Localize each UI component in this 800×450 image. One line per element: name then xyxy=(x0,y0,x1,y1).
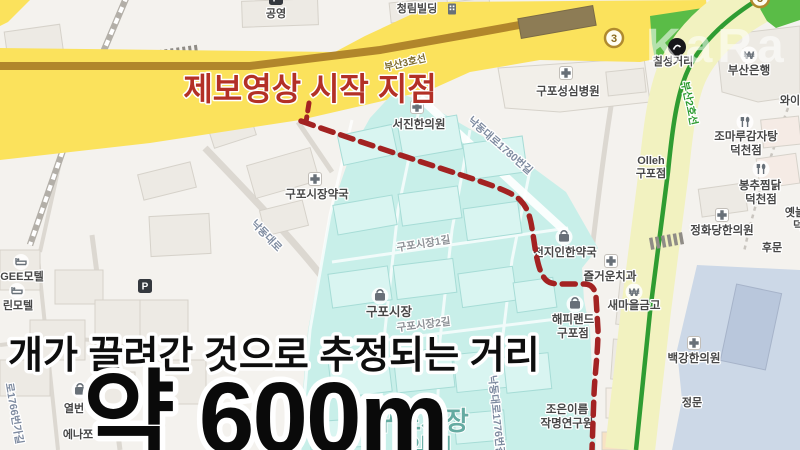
label-pharmacy: 구포시장약국 xyxy=(285,187,349,201)
label-olleh-1: Olleh xyxy=(637,155,665,167)
line3-station-marker-2 xyxy=(751,0,769,7)
restaurant-icon-bongchu xyxy=(753,161,770,178)
store-icon-happyland xyxy=(567,296,584,313)
kara-watermark: KaRa xyxy=(646,20,789,73)
label-jeongmun: 정문 xyxy=(682,395,702,409)
market-icon-gupo xyxy=(372,288,389,305)
label-jeonghwadang: 정화당한의원 xyxy=(690,223,753,237)
label-dental: 즐거운치과 xyxy=(584,269,637,283)
parking-icon xyxy=(138,279,152,293)
label-cheonjiin: 천지인한약국 xyxy=(533,245,597,259)
label-seojin: 서진한의원 xyxy=(393,117,446,131)
bank-icon-saemaul xyxy=(626,284,643,301)
clinic-icon-baekgang xyxy=(688,337,701,350)
line3-station-marker xyxy=(605,29,623,47)
store-icon-cheonjiin xyxy=(556,229,573,246)
hospital-icon-seongsim xyxy=(560,67,573,80)
label-wai: 와이 xyxy=(780,93,800,107)
label-cheonglim: 청림빌딩 xyxy=(397,1,437,15)
label-olleh-2: 구포점 xyxy=(636,166,666,180)
label-bongchu-2: 덕천점 xyxy=(745,192,777,206)
label-gongyoung: 공영 xyxy=(266,7,286,20)
start-point-title: 제보영상 시작 지점 xyxy=(183,71,436,107)
label-happyland-1: 해피랜드 xyxy=(552,312,595,326)
parking-icon-top xyxy=(269,0,283,5)
dental-icon-fun xyxy=(605,255,618,268)
label-saemaul: 새마을금고 xyxy=(608,298,661,312)
label-bongchu-1: 봉추찜닭 xyxy=(739,178,782,192)
label-yetneul: 옛늘 xyxy=(785,205,800,219)
label-joeun-2: 작명연구원 xyxy=(541,416,594,430)
label-jomaru-1: 조마루감자탕 xyxy=(714,129,778,143)
label-seongsim: 구포성심병원 xyxy=(536,84,599,98)
motel-icon-rin xyxy=(9,283,25,299)
label-happyland-2: 구포점 xyxy=(557,326,589,340)
motel-icon-gee xyxy=(13,254,29,270)
label-jomaru-2: 덕천점 xyxy=(730,143,762,157)
pharmacy-icon-gupo xyxy=(309,173,322,186)
label-rin-motel: 린모텔 xyxy=(3,298,33,312)
label-joeun-1: 조은이름 xyxy=(546,402,589,416)
map-screenshot[interactable]: ₩ P 3 xyxy=(0,0,800,450)
clinic-icon-jeonghwadang xyxy=(716,209,729,222)
label-baekgang: 백강한의원 xyxy=(668,351,721,365)
label-gee-motel: GEE모텔 xyxy=(0,270,43,283)
map-canvas[interactable]: ₩ P 3 xyxy=(0,0,800,450)
label-yeol: 열번 xyxy=(64,401,84,415)
distance-text: 약 600m xyxy=(83,362,447,450)
label-humun: 후문 xyxy=(762,240,782,254)
restaurant-icon-jomaru xyxy=(737,114,754,131)
building-icon xyxy=(448,4,456,15)
label-deok: 덕 xyxy=(793,218,800,232)
label-gupo-market: 구포시장 xyxy=(366,304,413,319)
